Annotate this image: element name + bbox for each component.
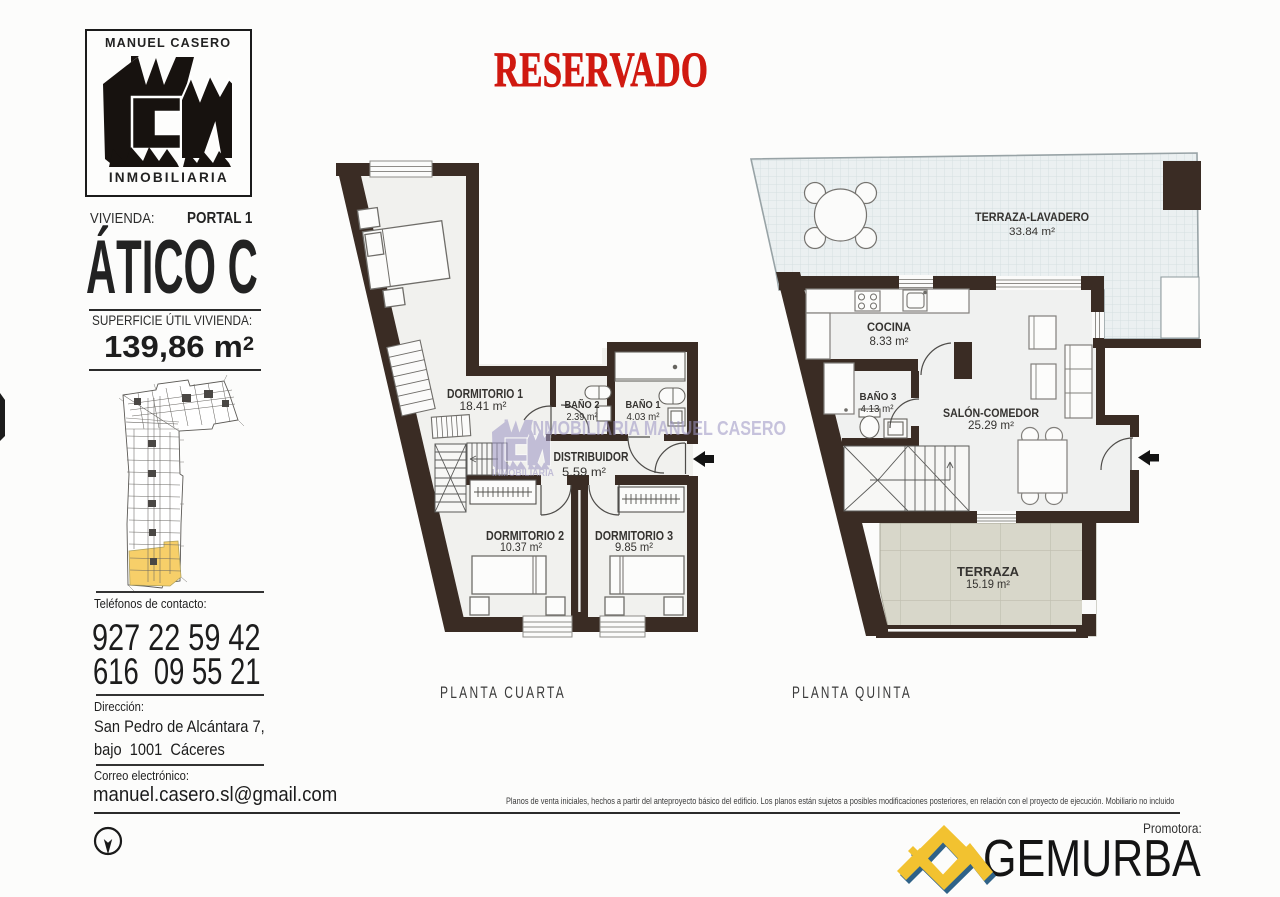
svg-text:33.84 m²: 33.84 m² [1009, 226, 1055, 238]
svg-text:8.33 m²: 8.33 m² [870, 336, 909, 348]
svg-text:10.37 m²: 10.37 m² [500, 540, 542, 554]
svg-text:BAÑO 3: BAÑO 3 [860, 390, 897, 403]
svg-text:INMOBILIARIA: INMOBILIARIA [492, 467, 554, 479]
svg-text:4.13 m²: 4.13 m² [861, 404, 895, 415]
svg-text:15.19 m²: 15.19 m² [966, 579, 1010, 591]
svg-text:DISTRIBUIDOR: DISTRIBUIDOR [554, 450, 629, 464]
svg-text:BAÑO 1: BAÑO 1 [626, 398, 661, 411]
svg-text:PLANTA QUINTA: PLANTA QUINTA [792, 683, 912, 702]
svg-text:5.59 m²: 5.59 m² [562, 465, 606, 479]
svg-text:9.85 m²: 9.85 m² [615, 540, 653, 554]
svg-text:18.41 m²: 18.41 m² [460, 399, 507, 413]
svg-text:TERRAZA-LAVADERO: TERRAZA-LAVADERO [975, 212, 1089, 224]
svg-text:25.29 m²: 25.29 m² [968, 420, 1014, 432]
svg-text:TERRAZA: TERRAZA [957, 565, 1019, 579]
svg-text:INMOBILIARIA MANUEL CASERO: INMOBILIARIA MANUEL CASERO [528, 418, 786, 440]
svg-text:BAÑO 2: BAÑO 2 [565, 398, 600, 411]
svg-text:PLANTA CUARTA: PLANTA CUARTA [440, 683, 566, 702]
svg-text:COCINA: COCINA [867, 320, 911, 334]
svg-text:SALÓN-COMEDOR: SALÓN-COMEDOR [943, 405, 1039, 420]
